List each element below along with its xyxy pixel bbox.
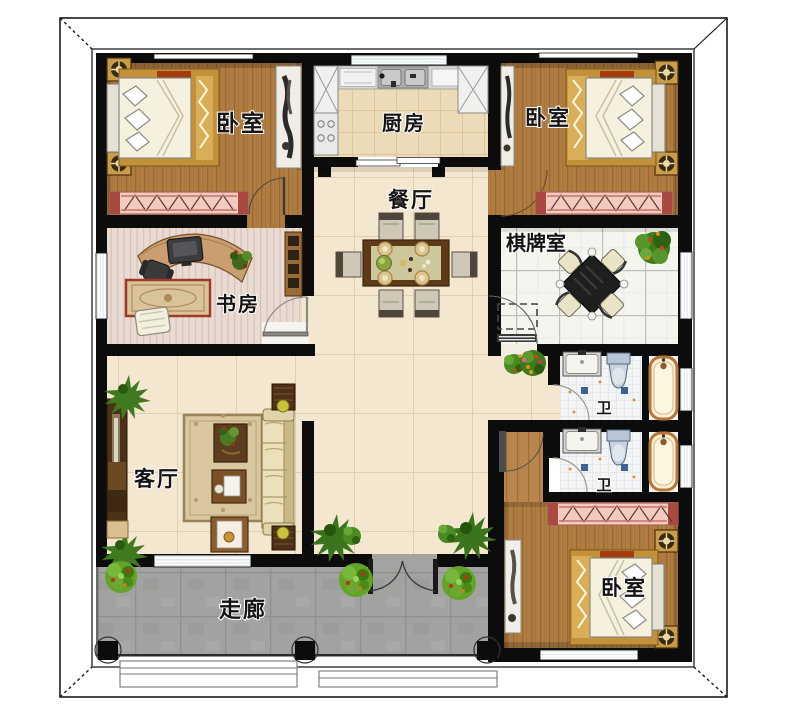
svg-text:走廊: 走廊 <box>219 597 267 622</box>
svg-text:餐厅: 餐厅 <box>388 188 434 212</box>
svg-text:卧室: 卧室 <box>216 110 266 136</box>
svg-text:棋牌室: 棋牌室 <box>506 231 566 255</box>
svg-text:客厅: 客厅 <box>134 467 180 491</box>
svg-text:卧室: 卧室 <box>525 106 571 130</box>
svg-text:卫: 卫 <box>596 477 611 494</box>
svg-text:卫: 卫 <box>596 400 611 417</box>
svg-text:书房: 书房 <box>216 292 260 316</box>
svg-text:厨房: 厨房 <box>382 111 426 135</box>
svg-text:卧室: 卧室 <box>601 576 647 600</box>
